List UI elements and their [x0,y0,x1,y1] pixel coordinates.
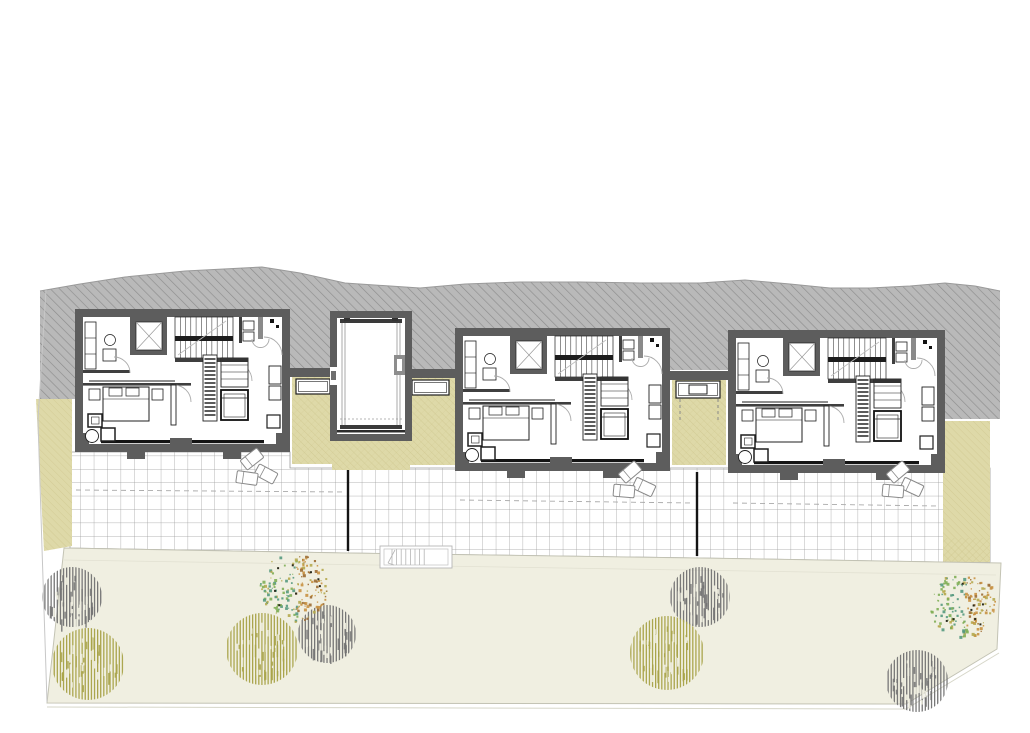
unit-2-plan [455,328,670,478]
site-plan [0,0,1030,733]
core-forecourt [332,437,410,470]
stair-lift-core [330,311,412,441]
planter [412,380,449,395]
exterior-stair [380,546,452,568]
lightwell-mid [670,371,728,465]
lightwell-right [405,369,455,465]
planter [676,381,720,398]
khaki-strip-right [943,421,990,562]
floor-plan-drawing [0,0,1030,733]
unit-1-plan [75,309,290,459]
garden-area [47,548,1001,709]
unit-3-plan [728,330,945,480]
planter [296,379,330,394]
tree-olive [226,613,298,685]
lounge-chair [236,471,258,486]
tree-gray [886,650,948,712]
tree-olive [630,616,704,690]
core-layer [330,311,412,441]
tree-olive [52,628,124,700]
lightwell-left [290,368,337,464]
lounge-chair [882,484,904,498]
lounge-chair [613,484,635,498]
garden-lawn [47,548,1001,704]
